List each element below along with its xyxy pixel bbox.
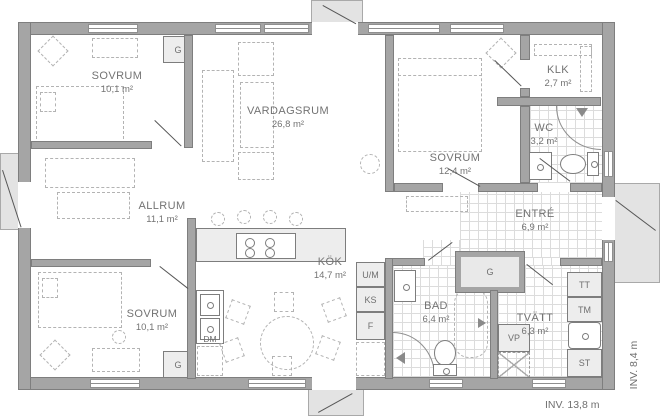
floor-plan: DM U/M KS F VP TT TM ST G G G bbox=[0, 0, 660, 416]
wall-partition bbox=[385, 35, 394, 192]
wall-partition bbox=[560, 258, 602, 266]
room-label-klk: KLK 2,7 m² bbox=[525, 64, 591, 90]
toilet-tank bbox=[587, 152, 599, 176]
bathtub-faucet-icon bbox=[478, 318, 486, 328]
room-name: SOVRUM bbox=[102, 308, 202, 322]
room-label-sovrum-bl: SOVRUM 10,1 m² bbox=[102, 308, 202, 334]
window bbox=[248, 379, 306, 388]
hall-floor-2 bbox=[524, 258, 560, 266]
hall-floor bbox=[423, 240, 460, 266]
dining-chair bbox=[315, 335, 341, 361]
dining-chair bbox=[225, 299, 251, 325]
door-opening bbox=[18, 182, 31, 228]
fridge-label: KS bbox=[364, 295, 376, 305]
room-label-wc: WC 3,2 m² bbox=[514, 122, 574, 148]
dimension-depth: INV. 8,4 m bbox=[628, 320, 642, 410]
room-label-entre: ENTRÉ 6,9 m² bbox=[490, 208, 580, 234]
tv-bench bbox=[238, 152, 274, 180]
chair bbox=[37, 35, 68, 66]
shower-head-icon bbox=[396, 352, 405, 364]
room-name: TVÄTT bbox=[500, 312, 570, 326]
window bbox=[368, 24, 440, 33]
fridge-cabinet: KS bbox=[356, 287, 385, 312]
room-name: VARDAGSRUM bbox=[228, 105, 348, 119]
desk bbox=[92, 38, 138, 58]
dryer-label: TT bbox=[579, 280, 590, 290]
chair bbox=[39, 339, 70, 370]
pantry bbox=[356, 342, 385, 376]
door-leaf bbox=[494, 60, 521, 86]
washer-box: TM bbox=[567, 297, 602, 322]
room-area: 10,1 m² bbox=[102, 322, 202, 334]
room-area: 6,9 m² bbox=[490, 222, 580, 234]
toilet-bowl bbox=[434, 340, 456, 366]
wardrobe-label: G bbox=[174, 45, 181, 55]
window bbox=[88, 24, 138, 33]
heat-pump-unit bbox=[498, 352, 530, 378]
shower-head-icon bbox=[576, 108, 588, 117]
room-name: WC bbox=[514, 122, 574, 136]
wardrobe-label: G bbox=[174, 360, 181, 370]
window bbox=[429, 379, 463, 388]
wall-partition bbox=[31, 141, 152, 149]
dining-chair bbox=[272, 356, 292, 376]
door-leaf bbox=[159, 266, 188, 289]
washing-machine bbox=[568, 322, 601, 349]
window bbox=[604, 151, 613, 177]
room-name: SOVRUM bbox=[67, 70, 167, 84]
room-name: ENTRÉ bbox=[490, 208, 580, 222]
wall-partition bbox=[187, 218, 196, 379]
dining-chair bbox=[321, 297, 347, 323]
bar-stool bbox=[263, 210, 277, 224]
room-area: 3,2 m² bbox=[514, 136, 574, 148]
wall-partition bbox=[497, 97, 601, 106]
wall-partition bbox=[394, 183, 443, 192]
freezer-cabinet: F bbox=[356, 312, 385, 340]
wall-partition bbox=[184, 35, 193, 148]
wall-partition bbox=[478, 183, 538, 192]
window bbox=[604, 242, 613, 262]
room-area: 6,4 m² bbox=[397, 314, 475, 326]
chair bbox=[485, 37, 516, 68]
washer-label: TM bbox=[578, 305, 591, 315]
pillow bbox=[40, 92, 56, 112]
freezer-label: F bbox=[368, 321, 374, 331]
wall-partition bbox=[31, 259, 151, 267]
window bbox=[264, 24, 309, 33]
room-area: 10,1 m² bbox=[67, 84, 167, 96]
room-label-sovrum-tl: SOVRUM 10,1 m² bbox=[67, 70, 167, 96]
room-name: BAD bbox=[397, 300, 475, 314]
room-area: 11,1 m² bbox=[112, 214, 212, 226]
toilet-bowl bbox=[560, 154, 586, 174]
bar-stool bbox=[289, 212, 303, 226]
bar-stool bbox=[237, 210, 251, 224]
room-name: SOVRUM bbox=[405, 152, 505, 166]
room-label-allrum: ALLRUM 11,1 m² bbox=[112, 200, 212, 226]
door-opening bbox=[312, 22, 358, 35]
cleaning-closet: ST bbox=[567, 349, 602, 377]
wall-partition bbox=[385, 258, 393, 379]
wardrobe-g-hall: G bbox=[456, 252, 524, 292]
pillow bbox=[398, 58, 482, 76]
room-area: 26,8 m² bbox=[228, 119, 348, 131]
toilet-tank bbox=[433, 364, 457, 376]
window bbox=[450, 24, 504, 33]
pillow bbox=[42, 278, 58, 298]
desk bbox=[92, 348, 140, 372]
wardrobe-label: G bbox=[486, 267, 493, 277]
door-opening bbox=[312, 377, 356, 390]
room-name: KÖK bbox=[285, 256, 375, 270]
room-area: 14,7 m² bbox=[285, 270, 375, 282]
dining-chair bbox=[274, 292, 294, 312]
hall-bench bbox=[406, 196, 468, 212]
room-area: 2,7 m² bbox=[525, 78, 591, 90]
room-name: ALLRUM bbox=[112, 200, 212, 214]
wall-partition bbox=[520, 35, 530, 60]
window bbox=[90, 379, 140, 388]
window bbox=[532, 379, 566, 388]
room-area: 12,4 m² bbox=[405, 166, 505, 178]
door-opening bbox=[602, 197, 615, 240]
room-label-kok: KÖK 14,7 m² bbox=[285, 256, 375, 282]
window bbox=[215, 24, 261, 33]
pouf bbox=[360, 154, 380, 174]
sofa bbox=[238, 42, 274, 76]
washbasin bbox=[394, 270, 416, 302]
cleaning-label: ST bbox=[579, 358, 591, 368]
room-name: KLK bbox=[525, 64, 591, 78]
wall-partition bbox=[570, 183, 602, 192]
sofa bbox=[45, 158, 135, 188]
room-area: 6,3 m² bbox=[500, 326, 570, 338]
room-label-tvatt: TVÄTT 6,3 m² bbox=[500, 312, 570, 338]
door-leaf bbox=[154, 120, 181, 146]
room-label-vardagsrum: VARDAGSRUM 26,8 m² bbox=[228, 105, 348, 131]
wall-partition bbox=[490, 290, 498, 379]
porch-right-entrance bbox=[614, 183, 660, 283]
dishwasher bbox=[197, 346, 223, 376]
dryer-box: TT bbox=[567, 272, 602, 297]
bar-stool bbox=[211, 212, 225, 226]
room-label-sovrum-tr: SOVRUM 12,4 m² bbox=[405, 152, 505, 178]
room-label-bad: BAD 6,4 m² bbox=[397, 300, 475, 326]
